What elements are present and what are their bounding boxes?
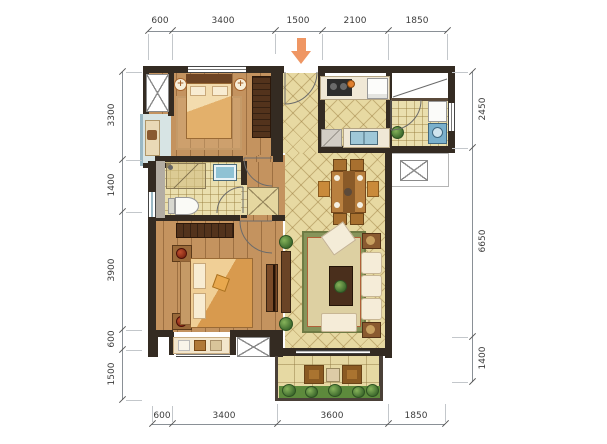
dim-ext-line: [452, 148, 468, 149]
dimension-label: 1400: [478, 338, 488, 378]
dim-ext-line: [172, 34, 173, 60]
door-arc-master: [240, 221, 272, 253]
dimension-line-bottom: [152, 424, 445, 425]
dim-ext-line: [126, 400, 142, 401]
dimension-label: 600: [107, 319, 117, 359]
dim-ext-line: [126, 160, 142, 161]
door-arc-utility: [391, 100, 421, 130]
dim-ext-line: [452, 72, 468, 73]
door-arc-entry: [285, 72, 317, 104]
floor-plan-canvas: + +: [0, 0, 607, 444]
dimension-label: 3400: [204, 411, 244, 421]
door-swing-overlay: [0, 0, 607, 444]
dimension-label: 3300: [107, 95, 117, 135]
dimension-label: 3600: [312, 411, 352, 421]
dimension-label: 3400: [203, 16, 243, 26]
dim-ext-line: [148, 34, 149, 60]
dim-ext-line: [452, 337, 468, 338]
dimension-label: 2100: [335, 16, 375, 26]
dim-ext-line: [126, 350, 142, 351]
dim-ext-line: [447, 34, 448, 60]
dimension-label: 1850: [396, 411, 436, 421]
dimension-label: 1400: [107, 165, 117, 205]
dimension-label: 1500: [107, 354, 117, 394]
dimension-line-left: [122, 72, 123, 400]
dimension-label: 6650: [478, 221, 488, 261]
door-arc-bedroom2: [244, 158, 272, 186]
dim-ext-line: [388, 404, 389, 422]
dim-ext-line: [126, 330, 142, 331]
dim-ext-line: [388, 34, 389, 60]
door-arc-bathroom: [217, 187, 243, 213]
dim-ext-line: [322, 34, 323, 60]
dim-ext-line: [126, 72, 142, 73]
dim-ext-line: [275, 34, 276, 54]
dim-ext-line: [452, 382, 468, 383]
dimension-line-top: [148, 31, 447, 32]
dimension-label: 600: [142, 411, 182, 421]
dimension-label: 2450: [478, 89, 488, 129]
closet-door-line: [393, 79, 447, 97]
dimension-label: 1850: [397, 16, 437, 26]
dim-ext-line: [445, 404, 446, 422]
dim-ext-line: [126, 212, 142, 213]
dimension-label: 3900: [107, 250, 117, 290]
dim-ext-line: [277, 404, 278, 422]
dimension-label: 1500: [278, 16, 318, 26]
dimension-label: 600: [140, 16, 180, 26]
